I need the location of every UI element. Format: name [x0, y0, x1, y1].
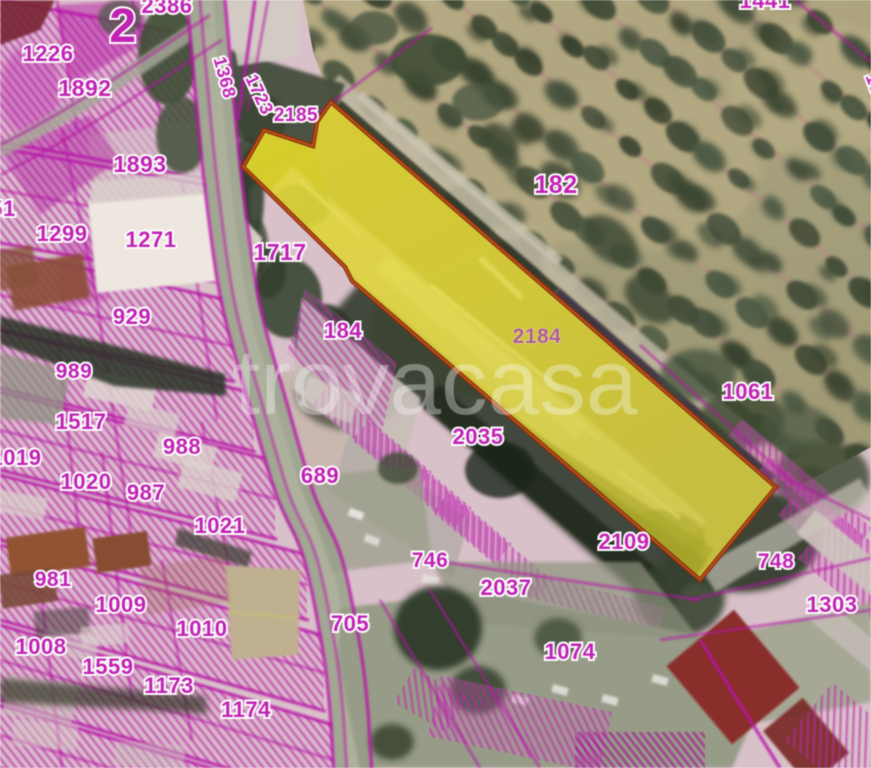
svg-text:1559: 1559 — [83, 654, 134, 679]
svg-text:989: 989 — [56, 360, 93, 383]
svg-text:1892: 1892 — [58, 75, 111, 101]
svg-text:746: 746 — [412, 549, 449, 572]
svg-text:705: 705 — [331, 611, 369, 636]
svg-text:1008: 1008 — [16, 634, 67, 659]
svg-text:1021: 1021 — [195, 513, 246, 538]
svg-text:2037: 2037 — [481, 575, 532, 600]
svg-text:748: 748 — [758, 550, 795, 573]
svg-text:1061: 1061 — [723, 379, 774, 404]
svg-text:1174: 1174 — [221, 697, 271, 722]
svg-text:1226: 1226 — [23, 41, 74, 66]
svg-text:trovacasa: trovacasa — [234, 330, 637, 434]
svg-text:981: 981 — [35, 568, 72, 591]
svg-text:1019: 1019 — [0, 445, 41, 470]
svg-text:1009: 1009 — [96, 592, 147, 617]
svg-text:689: 689 — [301, 463, 339, 488]
svg-text:929: 929 — [113, 304, 151, 329]
svg-text:1020: 1020 — [61, 469, 112, 494]
svg-text:51: 51 — [0, 196, 16, 221]
svg-text:1893: 1893 — [113, 151, 166, 177]
svg-text:182: 182 — [534, 171, 577, 199]
svg-text:2386: 2386 — [142, 0, 193, 18]
svg-text:1517: 1517 — [56, 409, 107, 434]
svg-text:2: 2 — [109, 0, 136, 53]
svg-text:1010: 1010 — [177, 616, 228, 641]
svg-text:987: 987 — [127, 480, 165, 505]
svg-text:1441: 1441 — [740, 0, 791, 13]
svg-text:2109: 2109 — [599, 529, 650, 554]
svg-text:1717: 1717 — [253, 239, 306, 265]
svg-text:988: 988 — [163, 434, 201, 459]
svg-text:1271: 1271 — [126, 227, 177, 252]
svg-text:2185: 2185 — [274, 105, 318, 126]
svg-text:1074: 1074 — [545, 639, 596, 664]
svg-text:1303: 1303 — [807, 592, 858, 617]
svg-text:1299: 1299 — [37, 221, 88, 246]
svg-text:1173: 1173 — [144, 673, 194, 698]
